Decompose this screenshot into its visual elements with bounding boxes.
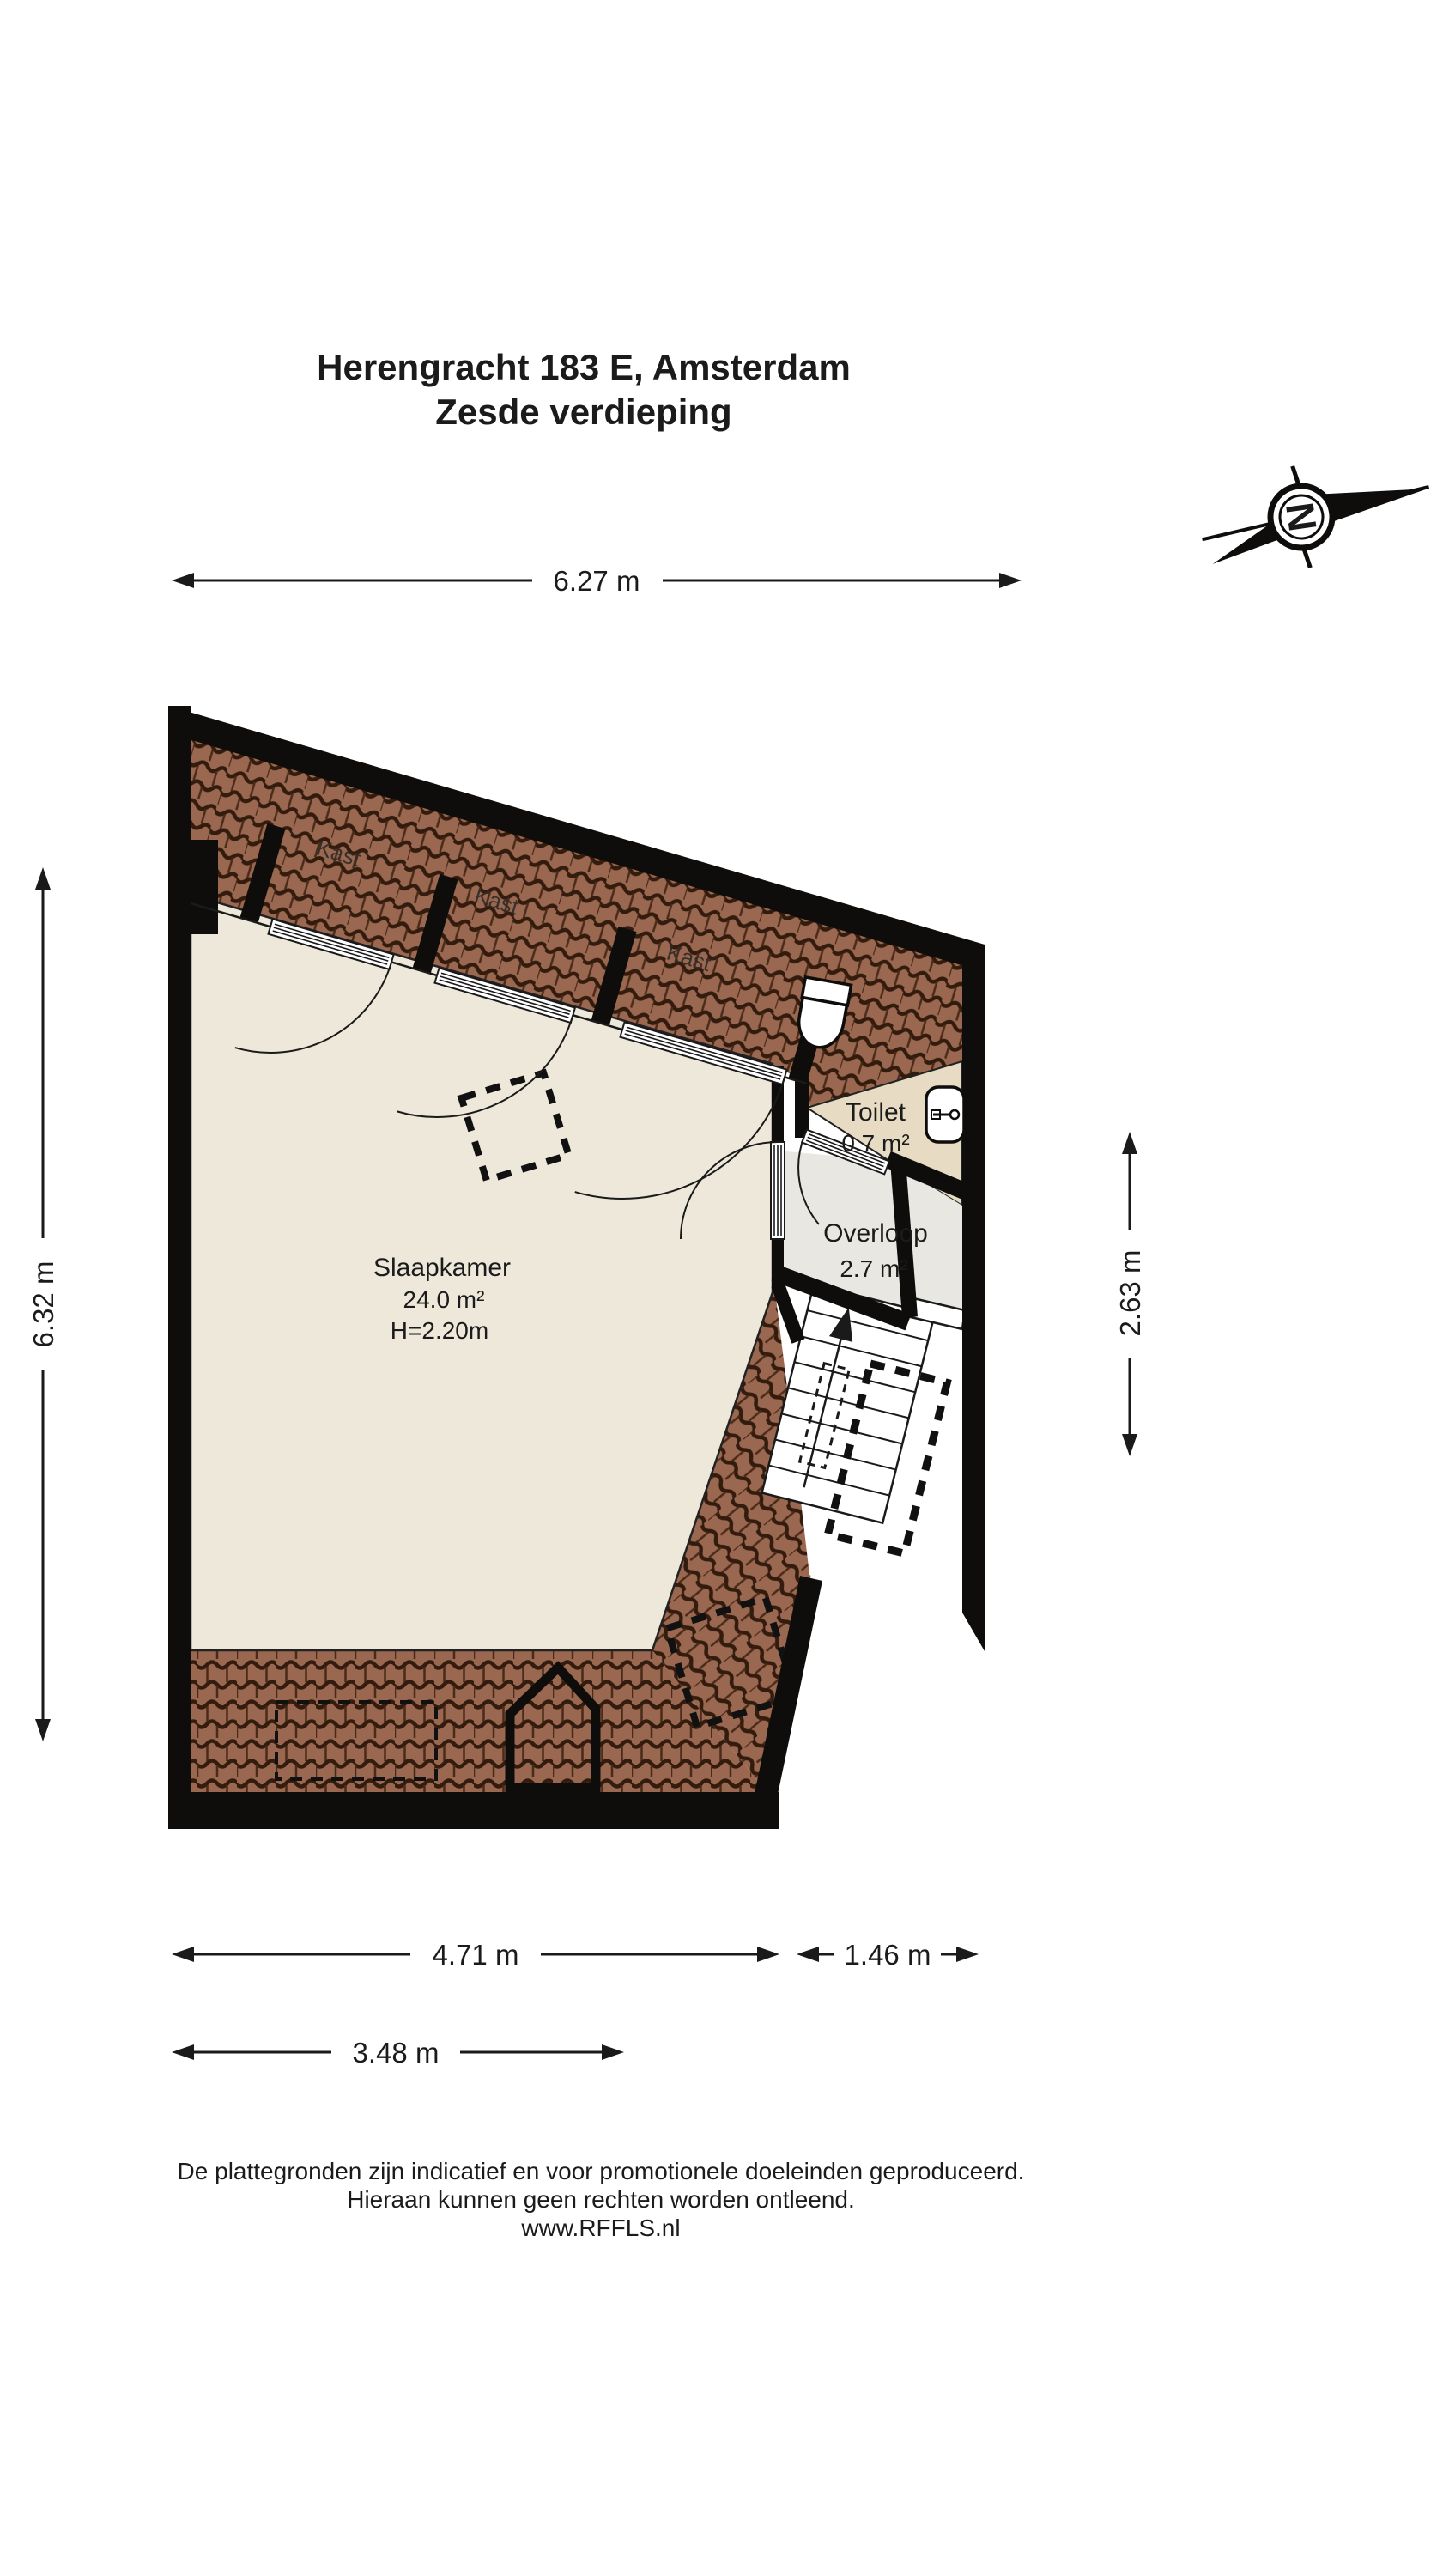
footer-website: www.RFFLS.nl bbox=[520, 2215, 680, 2241]
dimension-bottom-left: 4.71 m bbox=[172, 1939, 779, 1971]
dimension-top-value: 6.27 m bbox=[554, 565, 640, 597]
slaapkamer-name: Slaapkamer bbox=[373, 1254, 511, 1282]
toilet-name: Toilet bbox=[846, 1098, 906, 1127]
dimension-left: 6.32 m bbox=[27, 867, 59, 1741]
floorplan-canvas: Herengracht 183 E, Amsterdam Zesde verdi… bbox=[0, 0, 1449, 2576]
title-line1: Herengracht 183 E, Amsterdam bbox=[317, 347, 851, 387]
footer-disclaimer: De plattegronden zijn indicatief en voor… bbox=[178, 2158, 1025, 2241]
dimension-bottom-lower-value: 3.48 m bbox=[353, 2037, 440, 2069]
slaapkamer-height: H=2.20m bbox=[391, 1317, 488, 1344]
footer-line1: De plattegronden zijn indicatief en voor… bbox=[178, 2158, 1025, 2184]
overloop-name: Overloop bbox=[823, 1219, 928, 1248]
dimension-left-value: 6.32 m bbox=[27, 1261, 59, 1348]
dimension-bottom-right-value: 1.46 m bbox=[845, 1939, 931, 1971]
dimension-top: 6.27 m bbox=[172, 565, 1022, 597]
dimension-bottom-right: 1.46 m bbox=[797, 1939, 979, 1971]
sink-icon bbox=[926, 1087, 964, 1142]
page-title: Herengracht 183 E, Amsterdam Zesde verdi… bbox=[317, 347, 851, 432]
dimension-right-value: 2.63 m bbox=[1114, 1250, 1146, 1337]
compass-north-icon: N bbox=[1194, 447, 1438, 581]
dimension-bottom-lower: 3.48 m bbox=[172, 2037, 624, 2069]
slaapkamer-area: 24.0 m² bbox=[403, 1286, 485, 1313]
footer-line2: Hieraan kunnen geen rechten worden ontle… bbox=[347, 2186, 855, 2213]
floor-plan: Slaapkamer 24.0 m² H=2.20m Toilet 0.7 m²… bbox=[168, 706, 985, 1829]
toilet-area: 0.7 m² bbox=[841, 1130, 909, 1157]
title-line2: Zesde verdieping bbox=[435, 392, 731, 432]
dimension-bottom-left-value: 4.71 m bbox=[433, 1939, 519, 1971]
floorplan-page: Herengracht 183 E, Amsterdam Zesde verdi… bbox=[0, 0, 1449, 2576]
dimension-right: 2.63 m bbox=[1114, 1132, 1146, 1456]
overloop-area: 2.7 m² bbox=[840, 1255, 907, 1282]
